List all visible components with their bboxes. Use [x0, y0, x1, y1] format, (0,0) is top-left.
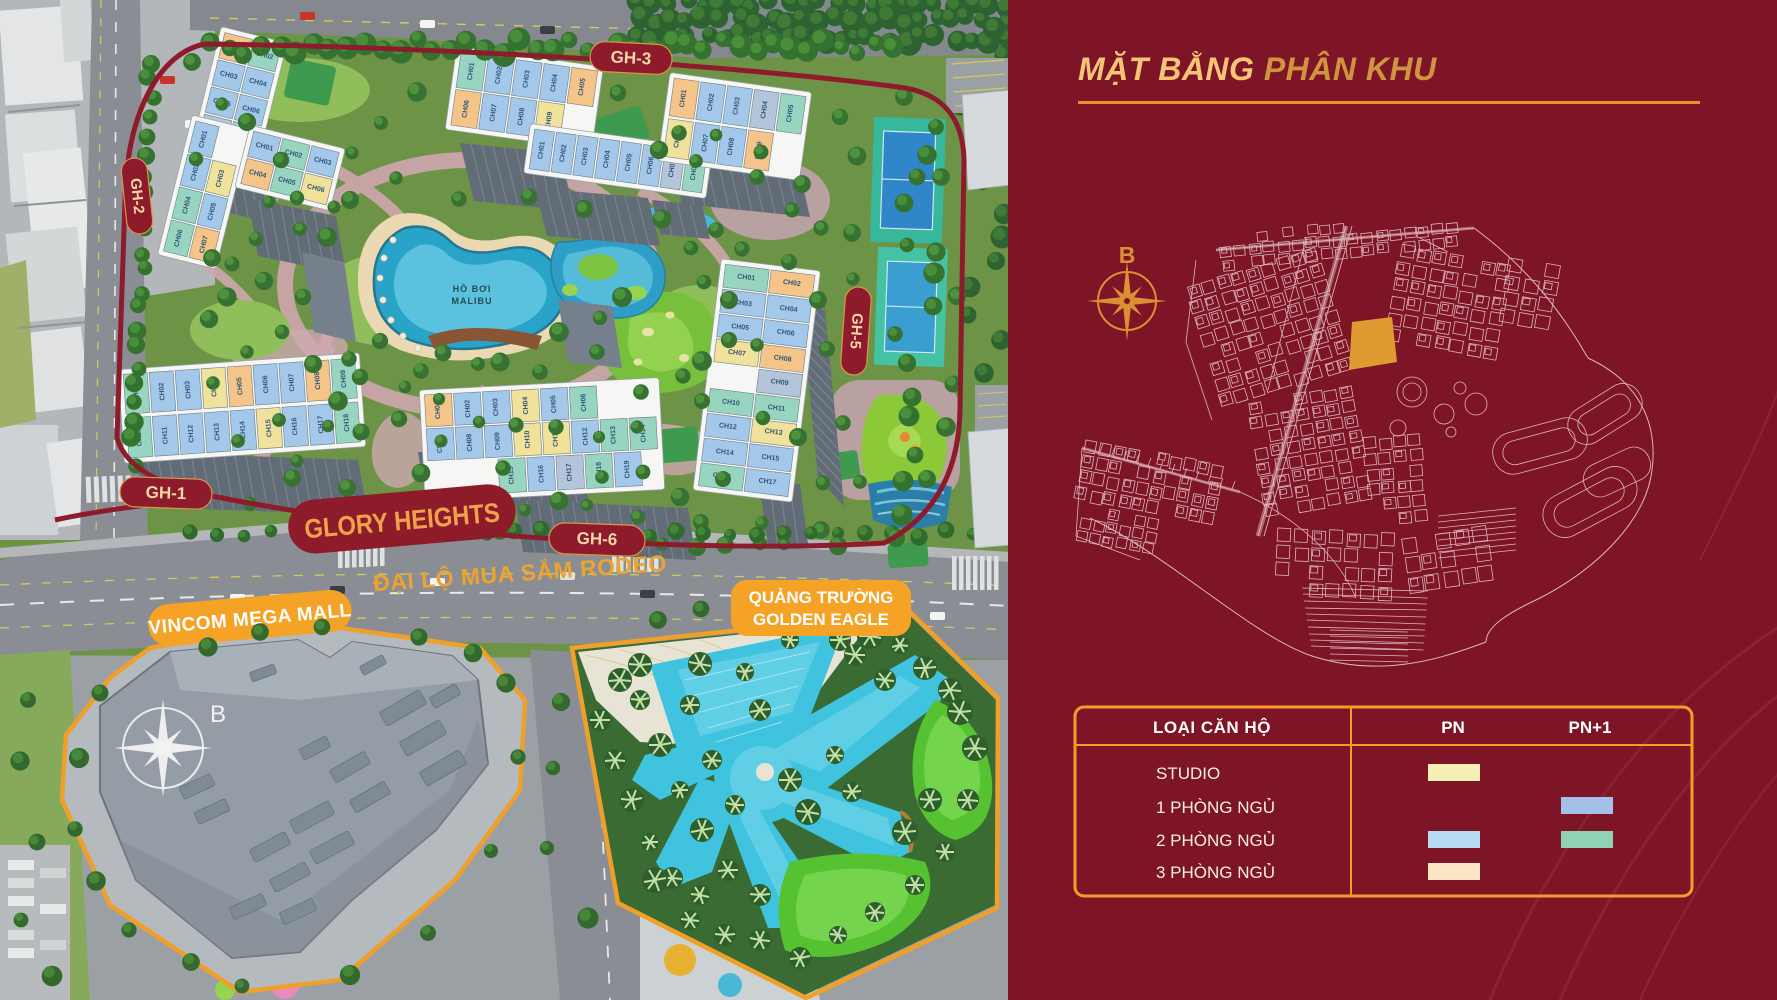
svg-text:CH18: CH18: [343, 413, 351, 431]
svg-text:CH10: CH10: [524, 430, 532, 448]
svg-text:CH16: CH16: [538, 465, 546, 483]
svg-text:CH19: CH19: [624, 460, 632, 478]
svg-text:CH05: CH05: [550, 395, 558, 413]
svg-text:CH02: CH02: [158, 382, 166, 400]
svg-text:CH16: CH16: [291, 417, 299, 435]
svg-text:CH05: CH05: [236, 377, 244, 395]
svg-text:CH04: CH04: [522, 396, 530, 414]
svg-text:GH-6: GH-6: [576, 529, 617, 549]
svg-text:CH02: CH02: [464, 399, 472, 417]
svg-text:GH-1: GH-1: [145, 483, 186, 503]
svg-text:GH-5: GH-5: [846, 313, 865, 350]
svg-text:CH15: CH15: [265, 419, 273, 437]
svg-text:CH17: CH17: [566, 463, 574, 481]
svg-text:2 PHÒNG NGỦ: 2 PHÒNG NGỦ: [1156, 831, 1275, 850]
svg-text:LOẠI CĂN HỘ: LOẠI CĂN HỘ: [1153, 718, 1271, 737]
svg-text:1 PHÒNG NGỦ: 1 PHÒNG NGỦ: [1156, 798, 1275, 817]
svg-text:CH03: CH03: [492, 398, 500, 416]
svg-text:CH06: CH06: [580, 393, 588, 411]
svg-text:CH13: CH13: [213, 423, 221, 441]
svg-text:CH12: CH12: [582, 427, 590, 445]
svg-text:PN: PN: [1441, 718, 1465, 737]
svg-text:CH09: CH09: [340, 370, 348, 388]
svg-text:CH11: CH11: [161, 426, 169, 444]
svg-text:GH-3: GH-3: [610, 47, 652, 68]
svg-text:CH09: CH09: [494, 432, 502, 450]
svg-text:CH13: CH13: [610, 426, 618, 444]
svg-text:CH07: CH07: [288, 373, 296, 391]
svg-text:STUDIO: STUDIO: [1156, 764, 1220, 783]
svg-text:CH06: CH06: [262, 375, 270, 393]
svg-text:PN+1: PN+1: [1569, 718, 1612, 737]
svg-text:CH08: CH08: [314, 371, 322, 389]
svg-text:MẶT BẰNG PHÂN KHU: MẶT BẰNG PHÂN KHU: [1078, 51, 1437, 87]
svg-text:MALIBU: MALIBU: [452, 296, 493, 306]
svg-text:B: B: [210, 701, 226, 728]
svg-text:B: B: [1119, 242, 1136, 268]
svg-text:CH08: CH08: [466, 433, 474, 451]
svg-text:QUẢNG TRƯỜNG: QUẢNG TRƯỜNG: [749, 588, 894, 607]
svg-text:CH12: CH12: [187, 424, 195, 442]
svg-text:CH03: CH03: [184, 380, 192, 398]
svg-text:HỒ BƠI: HỒ BƠI: [453, 283, 492, 294]
svg-text:GOLDEN EAGLE: GOLDEN EAGLE: [753, 610, 889, 629]
svg-text:3 PHÒNG NGỦ: 3 PHÒNG NGỦ: [1156, 863, 1275, 882]
